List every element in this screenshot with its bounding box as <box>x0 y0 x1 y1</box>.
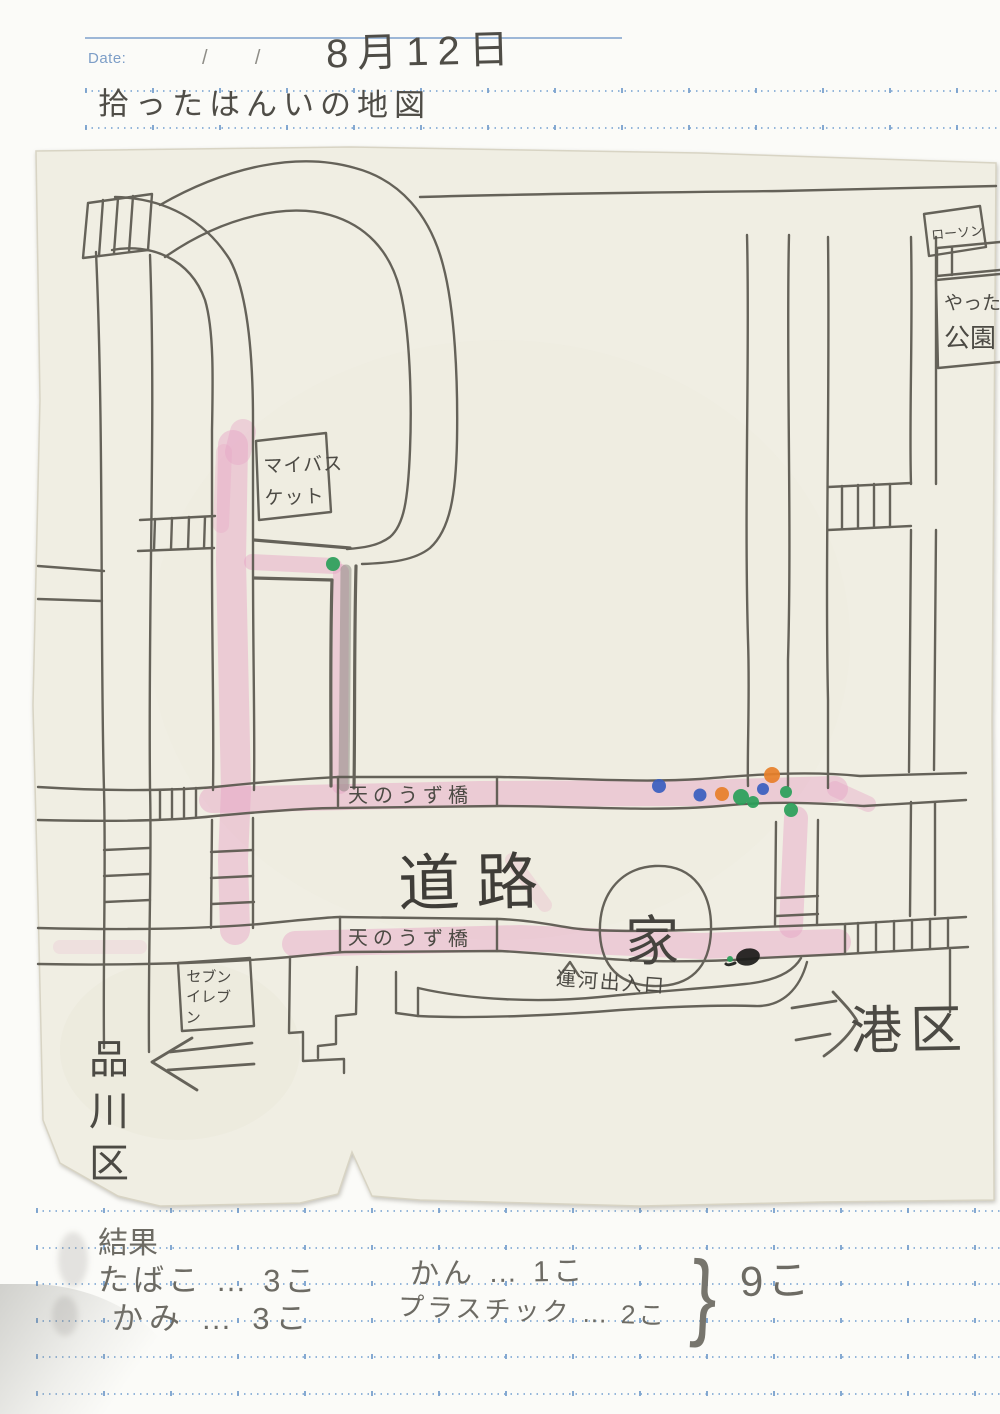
pencil-smudge <box>58 1232 88 1287</box>
label-minato-ward: 港区 <box>849 987 970 1064</box>
result-item: かん … 1こ <box>410 1254 587 1292</box>
label-my-basket: マイバスケット <box>263 449 347 516</box>
result-item: たばこ … 3こ <box>98 1261 320 1299</box>
label-park-line2: 公園 <box>944 319 1000 358</box>
label-seven-eleven: セブンイレブン <box>185 967 244 1029</box>
label-bridge-lower: 天のうず橋 <box>348 921 473 951</box>
label-road: 道路 <box>397 831 555 924</box>
label-park-line1: やった <box>944 290 1000 319</box>
label-house: 家 <box>625 897 679 976</box>
label-park: やった 公園 <box>944 290 1000 358</box>
results-total: 9こ <box>739 1255 814 1308</box>
hand-drawn-map <box>0 0 1000 1414</box>
results-heading: 結果 <box>98 1226 158 1262</box>
label-bridge-upper: 天のうず橋 <box>348 779 473 808</box>
notebook-page: { "header": { "date_label": "Date:", "da… <box>0 0 1000 1414</box>
label-shinagawa-ward: 品川区 <box>76 1038 134 1203</box>
loop-shading <box>344 570 346 786</box>
